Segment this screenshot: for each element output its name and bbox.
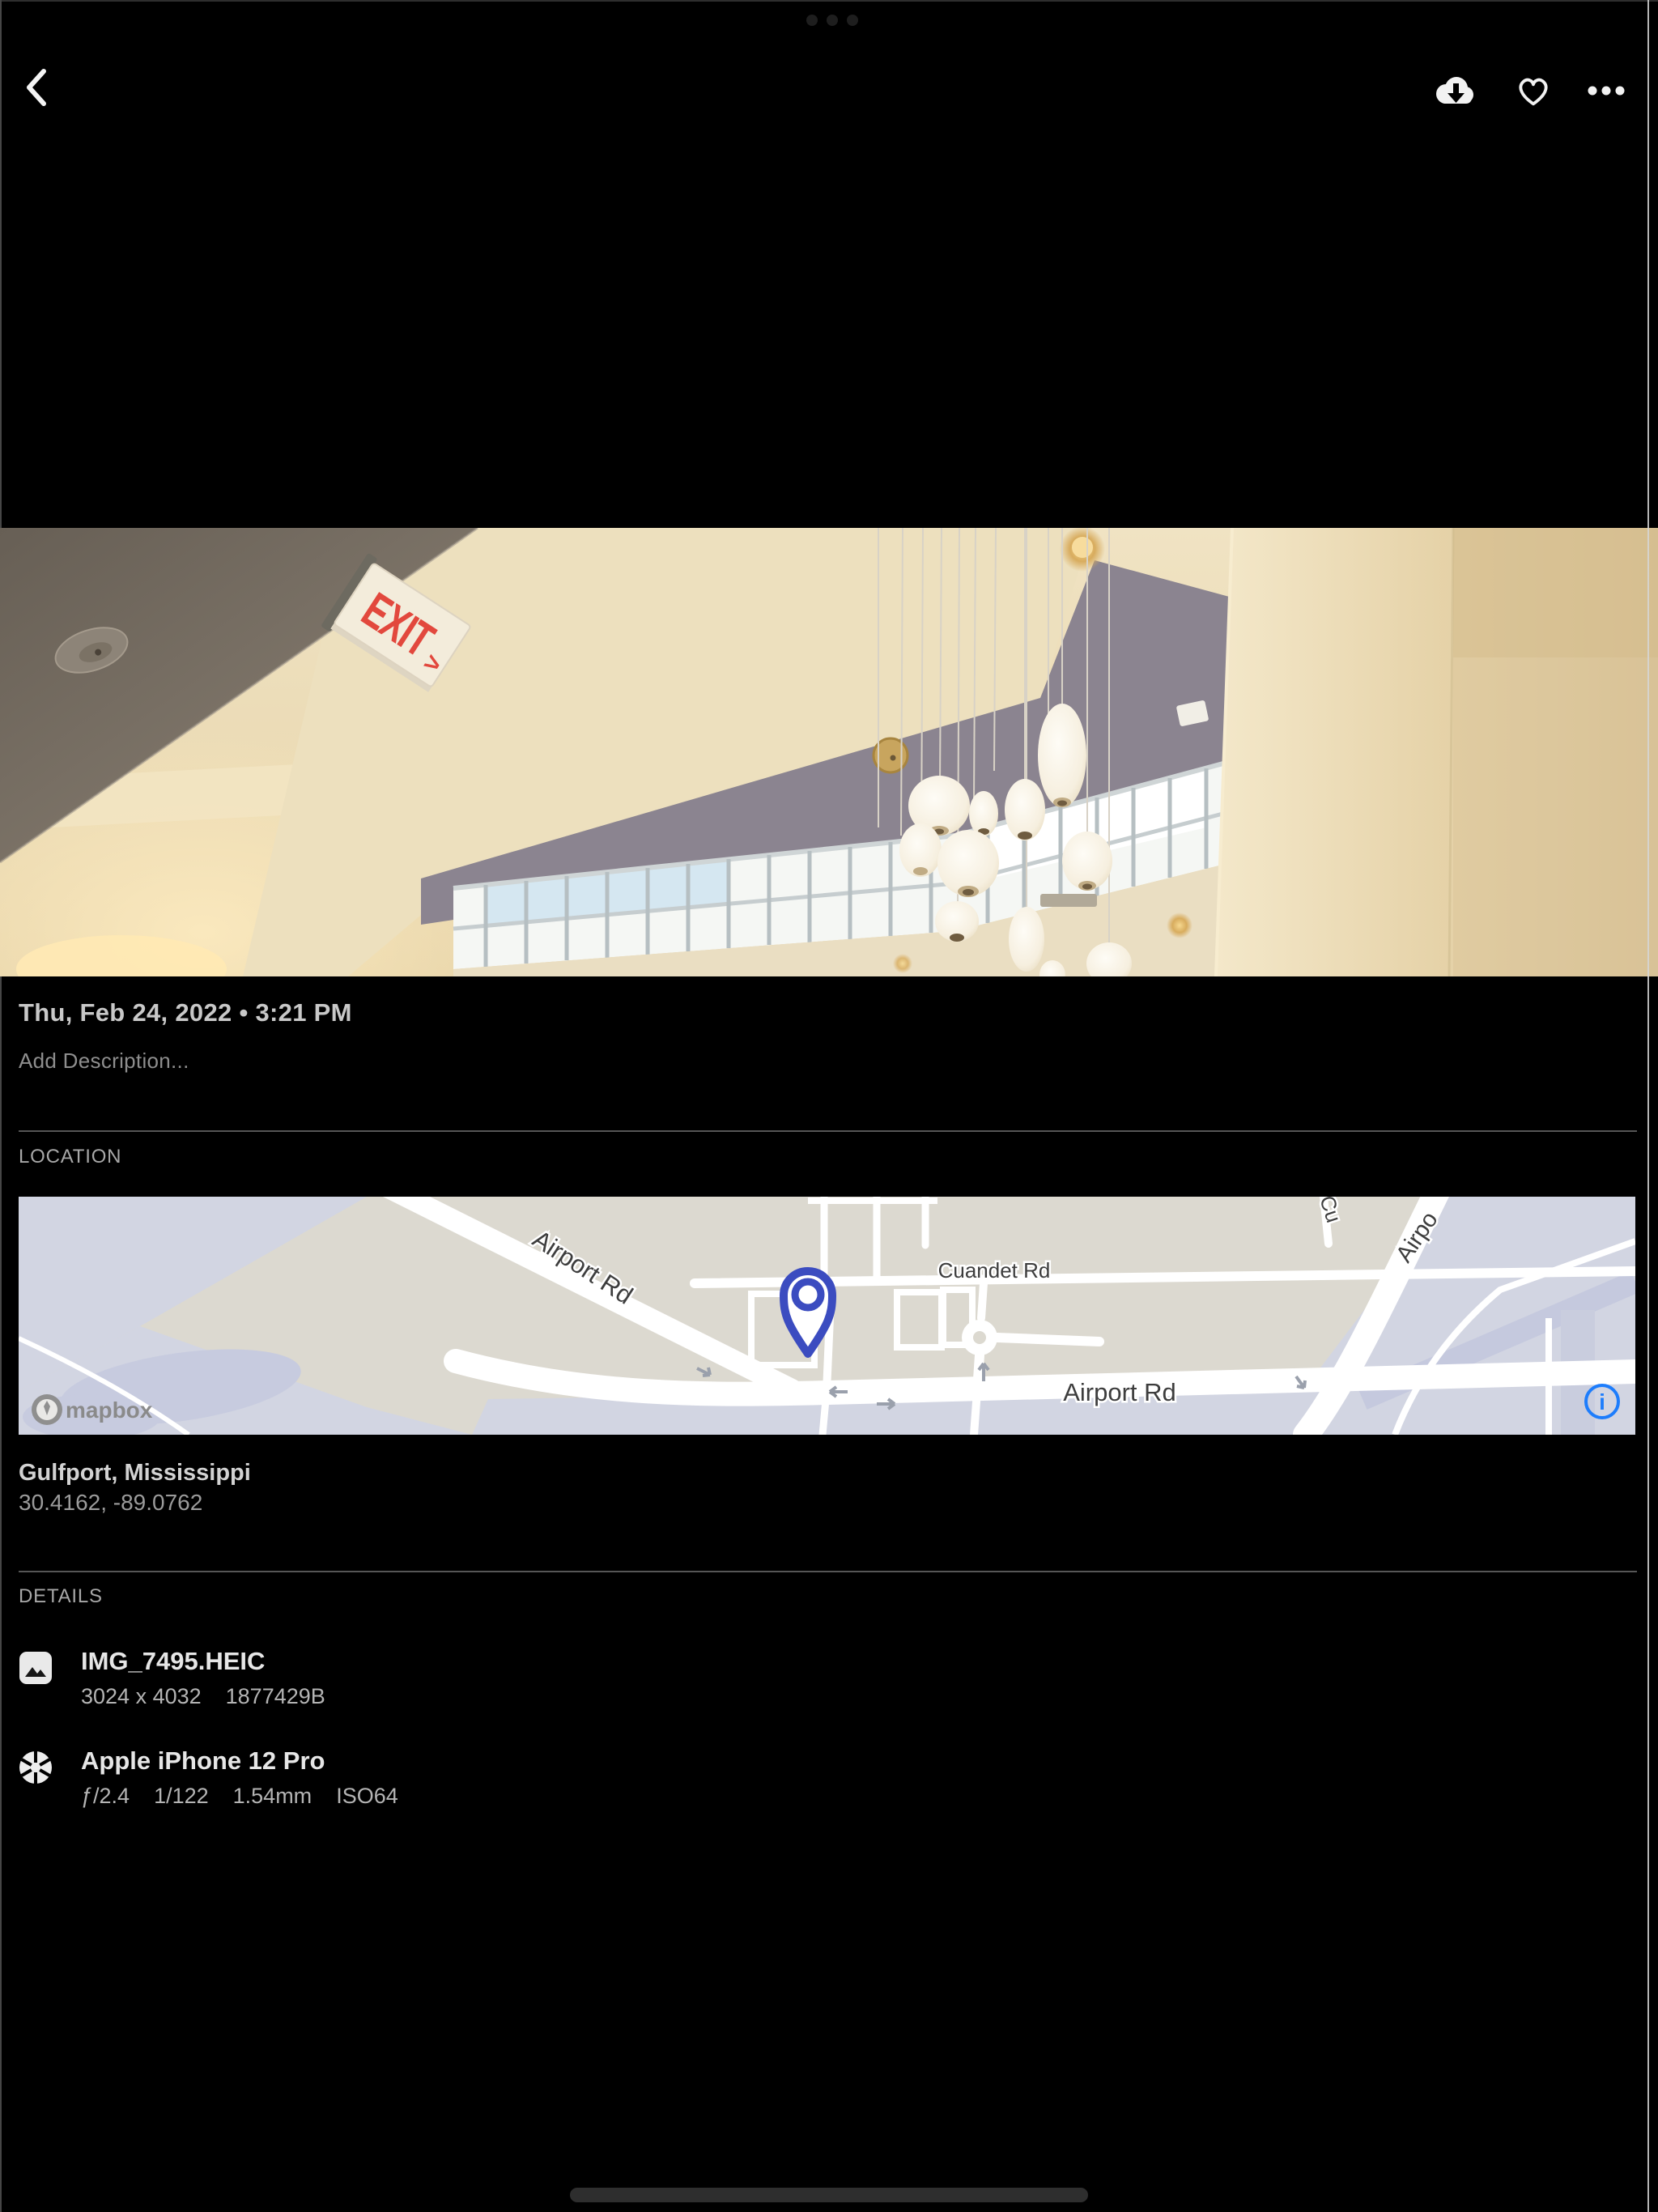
shutter-value: 1/122 [154,1784,209,1808]
mapbox-wordmark: mapbox [66,1397,153,1423]
camera-model: Apple iPhone 12 Pro [81,1746,325,1776]
mapbox-logo[interactable]: mapbox [32,1394,153,1425]
iso-value: ISO64 [336,1784,398,1808]
camera-meta: ƒ/2.41/1221.54mmISO64 [81,1784,423,1809]
ellipsis-icon [1585,84,1627,97]
home-indicator[interactable] [570,2188,1088,2202]
aperture-icon [18,1750,53,1785]
location-header: LOCATION [19,1146,121,1168]
top-toolbar [0,0,1658,173]
location-coordinates: 30.4162, -89.0762 [19,1490,202,1516]
image-icon [18,1650,53,1686]
back-button[interactable] [15,65,60,110]
atrium-column [1214,528,1658,976]
heart-icon [1515,73,1552,108]
aperture-value: ƒ/2.4 [81,1784,130,1808]
photo-detail-screen: EXIT > [0,0,1658,2212]
file-meta: 3024 x 40321877429B [81,1684,350,1709]
divider [19,1130,1637,1132]
location-map[interactable]: Airport Rd Cuandet Rd Airport Rd Airpo C… [19,1197,1635,1435]
photo-illustration: EXIT > [0,528,1658,976]
recessed-light [1167,912,1192,938]
cloud-download-icon [1431,73,1477,108]
file-dimensions: 3024 x 4032 [81,1684,202,1708]
photo-datetime: Thu, Feb 24, 2022 • 3:21 PM [19,998,352,1027]
focal-length: 1.54mm [233,1784,312,1808]
more-options-button[interactable] [1584,68,1629,113]
map-label-airport-rd: Airport Rd [1063,1378,1176,1406]
info-icon: i [1599,1389,1605,1414]
map-illustration: Airport Rd Cuandet Rd Airport Rd Airpo C… [19,1197,1635,1435]
details-header: DETAILS [19,1585,103,1608]
divider [19,1571,1637,1572]
left-hairline [0,0,2,2212]
file-size: 1877429B [226,1684,325,1708]
location-place: Gulfport, Mississippi [19,1460,251,1487]
favorite-button[interactable] [1511,68,1556,113]
chevron-left-icon [19,66,55,108]
description-input[interactable]: Add Description... [19,1049,189,1074]
download-button[interactable] [1431,68,1477,113]
right-hairline [1647,0,1649,2212]
air-vent [1040,894,1097,907]
photo-preview[interactable]: EXIT > [0,528,1658,976]
map-label-cuandet-rd: Cuandet Rd [938,1258,1051,1283]
file-name: IMG_7495.HEIC [81,1647,265,1676]
